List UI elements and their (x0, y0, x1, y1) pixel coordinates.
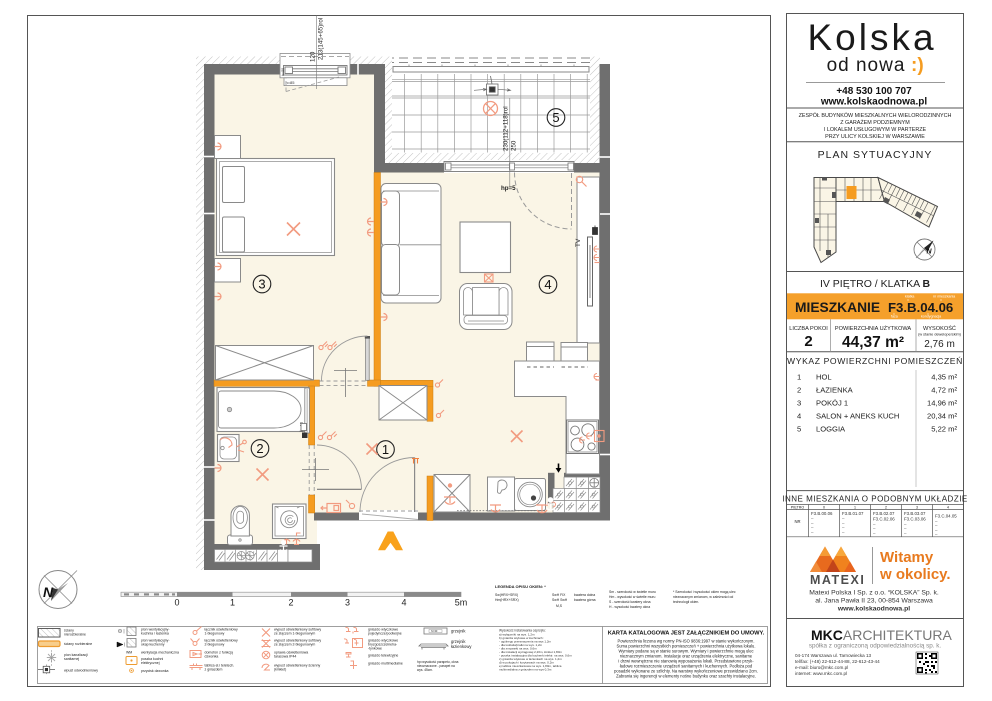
svg-text:sanitarnej: sanitarnej (64, 657, 79, 661)
svg-text:Hm - wysokość w świetle muru: Hm - wysokość w świetle muru (609, 595, 655, 599)
svg-text:4,72 m²: 4,72 m² (931, 386, 957, 395)
svg-text:4: 4 (401, 598, 406, 608)
svg-text:Zabrania się ingerencji w elem: Zabrania się ingerencji w elementy nośne… (616, 674, 756, 679)
svg-text:230(112+118)rol: 230(112+118)rol (503, 106, 510, 151)
svg-text:3: 3 (345, 598, 350, 608)
svg-text:multimedialna z gniazdem na wy: multimedialna z gniazdem na wys 0,3m (499, 668, 552, 672)
svg-text:5: 5 (552, 110, 559, 125)
svg-text:WM: WM (126, 651, 132, 655)
svg-text:faza: faza (891, 315, 898, 319)
svg-text:5m: 5m (455, 598, 468, 608)
svg-text:spółka z ograniczoną odpowiedz: spółka z ograniczoną odpowiedzialnością … (809, 643, 942, 650)
svg-text:2: 2 (256, 441, 263, 456)
svg-text:3: 3 (258, 277, 265, 292)
svg-text:1: 1 (230, 598, 235, 608)
svg-text:wpust odwodnieniowy: wpust odwodnieniowy (64, 669, 98, 673)
svg-text::): :) (911, 55, 924, 76)
svg-text:INNE MIESZKANIA O PODOBNYM UKŁ: INNE MIESZKANIA O PODOBNYM UKŁADZIE (782, 495, 968, 504)
svg-text:14,96 m²: 14,96 m² (927, 399, 957, 408)
svg-text:TV: TV (575, 238, 582, 247)
svg-text:MIESZKANIE: MIESZKANIE (795, 300, 880, 315)
svg-text:SwH FIX: SwH FIX (552, 593, 566, 597)
svg-text:PLAN SYTUACYJNY: PLAN SYTUACYJNY (818, 149, 933, 161)
svg-text:F3.B.00.06: F3.B.00.06 (811, 511, 833, 516)
svg-text:2: 2 (797, 386, 801, 395)
svg-text:tel/fax: (+48) 22-612-44-88: tel/fax: (+48) 22-612-44-88, 22-612-43-4… (795, 659, 880, 664)
svg-text:z gniazdem: z gniazdem (205, 668, 223, 672)
svg-text:Hm(HRX+SRX): Hm(HRX+SRX) (495, 598, 519, 602)
svg-text:F3.B.04.06: F3.B.04.06 (888, 300, 953, 315)
svg-text:N: N (43, 584, 54, 600)
svg-text:łazienkowy: łazienkowy (451, 644, 472, 649)
svg-text:2: 2 (885, 505, 887, 509)
svg-text:LEGENDA OPISU OKIEN: *: LEGENDA OPISU OKIEN: * (495, 584, 546, 589)
svg-text:* Szerokości i wysokości okie: * Szerokości i wysokości okien mogą ulec (673, 590, 736, 594)
svg-text:ŁAZIENKA: ŁAZIENKA (816, 386, 854, 395)
svg-text:klatka: klatka (905, 295, 914, 299)
svg-text:pojedyncze/podwójne: pojedyncze/podwójne (368, 632, 402, 636)
svg-text:POWIERZCHNIA UŻYTKOWA: POWIERZCHNIA UŻYTKOWA (835, 325, 912, 332)
svg-text:POKÓJ 1: POKÓJ 1 (816, 399, 848, 408)
svg-text:hp=5: hp=5 (501, 185, 516, 192)
svg-text:PRZY ULICY KOLSKIEJ W WARSZAWI: PRZY ULICY KOLSKIEJ W WARSZAWIE (825, 134, 925, 140)
svg-text:dzwonka: dzwonka (205, 655, 219, 659)
svg-text:F3.B.01.07: F3.B.01.07 (842, 511, 864, 516)
svg-text:M,S: M,S (556, 604, 563, 608)
svg-text:nierozbieralne: nierozbieralne (64, 633, 86, 637)
svg-text:F3.B.02.07: F3.B.02.07 (873, 511, 895, 516)
svg-text:wentylacja mechaniczna: wentylacja mechaniczna (141, 651, 179, 655)
svg-text:44,37 m²: 44,37 m² (842, 334, 904, 351)
svg-text:F3.C.03.06: F3.C.03.06 (904, 517, 926, 522)
svg-text:SALON + ANEKS KUCH: SALON + ANEKS KUCH (816, 412, 899, 421)
svg-text:1: 1 (797, 373, 801, 382)
svg-text:0: 0 (174, 598, 179, 608)
svg-text:F3.C.02.06: F3.C.02.06 (873, 517, 895, 522)
svg-text:okap kuchenny: okap kuchenny (141, 643, 165, 647)
svg-text:wys. 45cm.: wys. 45cm. (417, 668, 433, 672)
svg-text:04-174 Warszawa ul. Tarnowiec: 04-174 Warszawa ul. Tarnowiecka 13 (795, 653, 872, 658)
svg-text:IV PIĘTRO / KLATKA B: IV PIĘTRO / KLATKA B (820, 278, 931, 290)
svg-text:ściany rozbieralne: ściany rozbieralne (64, 642, 92, 646)
svg-text:F3.B.03.07: F3.B.03.07 (904, 511, 926, 516)
svg-text:PIĘTRO: PIĘTRO (791, 505, 805, 509)
svg-text:+48 530 100 707: +48 530 100 707 (836, 86, 912, 97)
svg-text:LOGGIA: LOGGIA (816, 425, 846, 434)
svg-text:WYSOKOŚĆ: WYSOKOŚĆ (923, 324, 956, 332)
svg-text:-tynkowe: -tynkowe (368, 647, 382, 651)
svg-text:4: 4 (797, 412, 801, 421)
svg-text:Kolska: Kolska (807, 17, 936, 58)
svg-text:4: 4 (544, 277, 551, 292)
svg-text:4,35 m²: 4,35 m² (931, 373, 957, 382)
svg-text:(kinkiet): (kinkiet) (274, 668, 286, 672)
svg-text:gniazdo telewizyjne: gniazdo telewizyjne (368, 654, 398, 658)
svg-text:(w stanie deweloperskim): (w stanie deweloperskim) (918, 333, 962, 337)
svg-text:ze złączem 2-biegunowym: ze złączem 2-biegunowym (274, 643, 315, 647)
svg-text:al. Jana Pawła II 23, 00-854 W: al. Jana Pawła II 23, 00-854 Warszawa (815, 598, 933, 605)
svg-text:tarasowa IP44: tarasowa IP44 (274, 655, 296, 659)
svg-text:HOL: HOL (816, 373, 832, 382)
svg-text:I LOKALEM USŁUGOWYM W PARTERZE: I LOKALEM USŁUGOWYM W PARTERZE (824, 127, 927, 133)
svg-text:3: 3 (797, 399, 801, 408)
svg-text:ze złączem 1-biegunowym: ze złączem 1-biegunowym (274, 632, 315, 636)
svg-text:kuchnia / łazienka: kuchnia / łazienka (141, 632, 169, 636)
svg-text:Sm - szerokość w świetle muru: Sm - szerokość w świetle muru (609, 590, 656, 594)
svg-text:2-biegunowy: 2-biegunowy (205, 643, 225, 647)
svg-text:MATEXI: MATEXI (810, 573, 865, 587)
svg-text:5: 5 (797, 425, 801, 434)
svg-text:20,34 m²: 20,34 m² (927, 412, 957, 421)
svg-text:h=85: h=85 (286, 80, 296, 85)
svg-text:250: 250 (511, 140, 518, 151)
svg-text:1: 1 (854, 505, 856, 509)
svg-text:4: 4 (947, 505, 949, 509)
svg-text:1: 1 (382, 442, 389, 457)
svg-text:internet: www.mkc.com.pl: internet: www.mkc.com.pl (795, 671, 847, 676)
svg-text:NR: NR (794, 519, 800, 524)
svg-text:kwatera górna: kwatera górna (574, 598, 596, 602)
svg-text:grzejnik: grzejnik (451, 629, 466, 634)
svg-text:kwatera dolna: kwatera dolna (574, 593, 595, 597)
svg-text:213(145+65)rol: 213(145+65)rol (318, 18, 325, 60)
svg-text:przycisk dzwonka: przycisk dzwonka (141, 669, 168, 673)
svg-text:h=80: h=80 (281, 68, 285, 76)
svg-text:od nowa: od nowa (827, 55, 906, 76)
svg-text:MKCARCHITEKTURA: MKCARCHITEKTURA (811, 627, 952, 643)
svg-text:nieznacznym zmianom, w zależno: nieznacznym zmianom, w zależności od (673, 595, 733, 599)
svg-text:1-biegunowy: 1-biegunowy (205, 632, 225, 636)
svg-text:www.kolskaodnowa.pl: www.kolskaodnowa.pl (820, 97, 928, 108)
svg-text:Witamy: Witamy (880, 549, 934, 566)
svg-text:3: 3 (916, 505, 918, 509)
svg-text:kondygnacja: kondygnacja (921, 315, 941, 319)
svg-text:e-mail: biuro@mkc.com.pl: e-mail: biuro@mkc.com.pl (795, 665, 848, 670)
svg-text:2,76 m: 2,76 m (924, 339, 955, 350)
svg-text:F3.C.04.05: F3.C.04.05 (935, 514, 957, 519)
svg-text:www.kolskaodnowa.pl: www.kolskaodnowa.pl (837, 606, 910, 613)
svg-text:S - szerokość kwatery okna: S - szerokość kwatery okna (609, 600, 651, 604)
svg-text:SwH SwH: SwH SwH (552, 598, 568, 602)
svg-text:LICZBA POKOI: LICZBA POKOI (789, 326, 828, 332)
svg-text:KARTA KATALOGOWA JEST ZAŁĄCZNI: KARTA KATALOGOWA JEST ZAŁĄCZNIKIEM DO UM… (608, 631, 765, 637)
svg-text:w okolicy.: w okolicy. (879, 566, 951, 583)
svg-text:5,22 m²: 5,22 m² (931, 425, 957, 434)
svg-text:ZESPÓŁ BUDYNKÓW MIESZKALNYCH W: ZESPÓŁ BUDYNKÓW MIESZKALNYCH WIELORODZIN… (799, 112, 952, 119)
svg-text:elektrycznej: elektrycznej (141, 661, 160, 665)
svg-text:H - wysokość kwatery okna: H - wysokość kwatery okna (609, 605, 650, 609)
svg-text:120: 120 (310, 51, 317, 62)
svg-text:2: 2 (804, 333, 812, 350)
svg-text:gniazdo multimedialne: gniazdo multimedialne (368, 662, 403, 666)
svg-text:technologii okien.: technologii okien. (673, 600, 699, 604)
svg-text:h=30: h=30 (431, 629, 438, 633)
svg-text:Sw(HRX+SRX): Sw(HRX+SRX) (495, 593, 518, 597)
svg-text:Matexi Polska I Sp. z o.o. “KO: Matexi Polska I Sp. z o.o. “KOLSKA” Sp. … (809, 590, 939, 597)
svg-text:WYKAZ POWIERZCHNI POMIESZCZEŃ: WYKAZ POWIERZCHNI POMIESZCZEŃ (787, 356, 963, 366)
svg-text:Z GARAŻEM PODZIEMNYM: Z GARAŻEM PODZIEMNYM (840, 119, 910, 126)
svg-text:nr mieszkania: nr mieszkania (933, 295, 955, 299)
svg-text:2: 2 (288, 598, 293, 608)
svg-text:0: 0 (823, 505, 825, 509)
